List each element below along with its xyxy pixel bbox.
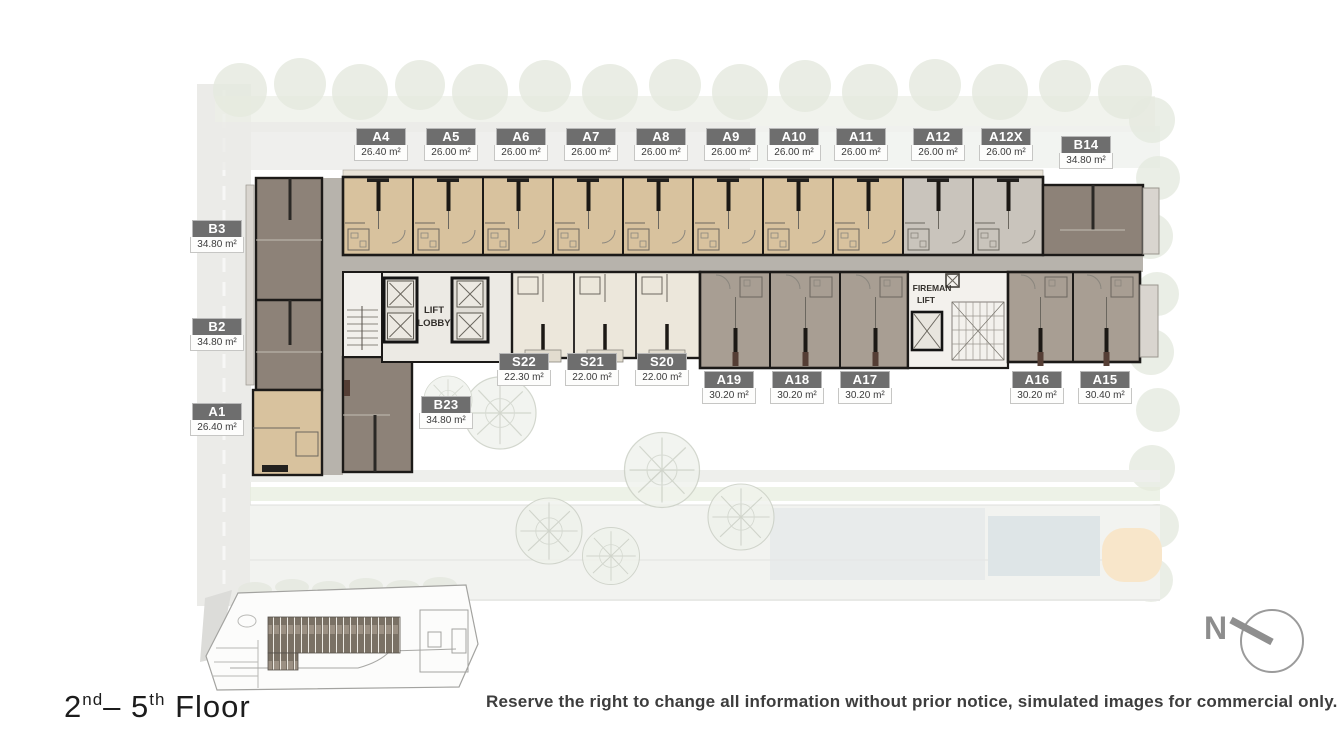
pool bbox=[988, 516, 1100, 576]
unit-area: 22.00 m² bbox=[635, 370, 689, 386]
north-label: N bbox=[1204, 610, 1227, 646]
unit-area: 34.80 m² bbox=[419, 413, 473, 429]
fireman-lift-core: FIREMAN LIFT bbox=[908, 272, 1008, 368]
fireman-lift-label-line1: FIREMAN bbox=[913, 283, 952, 293]
floor-separator: – bbox=[103, 689, 131, 724]
unit-name: S20 bbox=[638, 354, 686, 370]
floor-word: Floor bbox=[165, 689, 250, 724]
unit-label-b23: B23 34.80 m² bbox=[419, 397, 473, 429]
north-compass: N bbox=[1204, 610, 1303, 672]
unit-name: A1 bbox=[193, 404, 241, 420]
unit-label-a6: A6 26.00 m² bbox=[494, 129, 548, 161]
floor-title: 2nd– 5th Floor bbox=[64, 689, 251, 725]
unit-label-b2: B2 34.80 m² bbox=[190, 319, 244, 351]
unit-label-a10: A10 26.00 m² bbox=[767, 129, 821, 161]
unit-label-b3: B3 34.80 m² bbox=[190, 221, 244, 253]
unit-name: B14 bbox=[1062, 137, 1110, 153]
unit-area: 26.00 m² bbox=[767, 145, 821, 161]
unit-label-a9: A9 26.00 m² bbox=[704, 129, 758, 161]
unit-area: 26.00 m² bbox=[634, 145, 688, 161]
side-corridor bbox=[322, 178, 343, 475]
main-corridor bbox=[322, 255, 1143, 272]
unit-label-a16: A16 30.20 m² bbox=[1010, 372, 1064, 404]
unit-label-s22: S22 22.30 m² bbox=[497, 354, 551, 386]
left-balcony-strip bbox=[246, 185, 254, 385]
unit-area: 26.00 m² bbox=[979, 145, 1033, 161]
unit-name: A9 bbox=[707, 129, 755, 145]
unit-name: A16 bbox=[1013, 372, 1061, 388]
unit-label-a1: A1 26.40 m² bbox=[190, 404, 244, 436]
unit-label-a11: A11 26.00 m² bbox=[834, 129, 888, 161]
unit-area: 26.00 m² bbox=[911, 145, 965, 161]
unit-area: 22.00 m² bbox=[565, 370, 619, 386]
unit-label-a4: A4 26.40 m² bbox=[354, 129, 408, 161]
key-plan bbox=[200, 577, 478, 690]
unit-label-b14: B14 34.80 m² bbox=[1059, 137, 1113, 169]
deck-area bbox=[770, 508, 985, 580]
unit-label-a12: A12 26.00 m² bbox=[911, 129, 965, 161]
unit-name: B3 bbox=[193, 221, 241, 237]
right-balcony-strip bbox=[1140, 285, 1158, 357]
floorplan-page: LIFT LOBBY bbox=[0, 0, 1342, 754]
unit-label-a5: A5 26.00 m² bbox=[424, 129, 478, 161]
unit-name: A18 bbox=[773, 372, 821, 388]
unit-area: 30.20 m² bbox=[770, 388, 824, 404]
unit-label-a19: A19 30.20 m² bbox=[702, 372, 756, 404]
unit-area: 34.80 m² bbox=[190, 335, 244, 351]
unit-label-a12x: A12X 26.00 m² bbox=[979, 129, 1033, 161]
orange-deck bbox=[1102, 528, 1162, 582]
unit-area: 26.00 m² bbox=[704, 145, 758, 161]
unit-area: 30.20 m² bbox=[1010, 388, 1064, 404]
unit-area: 30.20 m² bbox=[838, 388, 892, 404]
unit-area: 34.80 m² bbox=[1059, 153, 1113, 169]
unit-label-s20: S20 22.00 m² bbox=[635, 354, 689, 386]
unit-name: A11 bbox=[837, 129, 885, 145]
unit-name: B23 bbox=[422, 397, 470, 413]
unit-label-a15: A15 30.40 m² bbox=[1078, 372, 1132, 404]
unit-area: 34.80 m² bbox=[190, 237, 244, 253]
unit-name: A12X bbox=[982, 129, 1030, 145]
unit-area: 26.00 m² bbox=[834, 145, 888, 161]
disclaimer-text: Reserve the right to change all informat… bbox=[486, 692, 1338, 712]
unit-name: A6 bbox=[497, 129, 545, 145]
unit-area: 30.40 m² bbox=[1078, 388, 1132, 404]
floor-num-end: 5 bbox=[131, 689, 149, 724]
floor-ordinal-start: nd bbox=[82, 690, 103, 709]
unit-name: A8 bbox=[637, 129, 685, 145]
unit-area: 22.30 m² bbox=[497, 370, 551, 386]
unit-name: B2 bbox=[193, 319, 241, 335]
unit-label-a7: A7 26.00 m² bbox=[564, 129, 618, 161]
lift-lobby: LIFT LOBBY bbox=[382, 272, 512, 362]
floor-num-start: 2 bbox=[64, 689, 82, 724]
unit-area: 26.00 m² bbox=[494, 145, 548, 161]
unit-area: 26.40 m² bbox=[354, 145, 408, 161]
lift-lobby-label-line2: LOBBY bbox=[417, 318, 451, 329]
unit-name: A4 bbox=[357, 129, 405, 145]
key-plan-building-footprint bbox=[268, 617, 400, 653]
unit-name: S21 bbox=[568, 354, 616, 370]
unit-name: A12 bbox=[914, 129, 962, 145]
unit-name: A10 bbox=[770, 129, 818, 145]
unit-area: 26.00 m² bbox=[564, 145, 618, 161]
unit-name: A19 bbox=[705, 372, 753, 388]
unit-name: A15 bbox=[1081, 372, 1129, 388]
unit-name: A5 bbox=[427, 129, 475, 145]
unit-area: 26.00 m² bbox=[424, 145, 478, 161]
fireman-lift-label-line2: LIFT bbox=[917, 295, 936, 305]
unit-area: 30.20 m² bbox=[702, 388, 756, 404]
unit-name: A7 bbox=[567, 129, 615, 145]
b14-balcony bbox=[1143, 188, 1159, 254]
unit-label-a18: A18 30.20 m² bbox=[770, 372, 824, 404]
unit-name: S22 bbox=[500, 354, 548, 370]
lift-lobby-label-line1: LIFT bbox=[424, 305, 444, 316]
left-staircase bbox=[343, 272, 382, 357]
unit-label-s21: S21 22.00 m² bbox=[565, 354, 619, 386]
unit-area: 26.40 m² bbox=[190, 420, 244, 436]
floor-ordinal-end: th bbox=[149, 690, 165, 709]
unit-label-a17: A17 30.20 m² bbox=[838, 372, 892, 404]
unit-name: A17 bbox=[841, 372, 889, 388]
building-plan: LIFT LOBBY bbox=[246, 170, 1159, 475]
unit-label-a8: A8 26.00 m² bbox=[634, 129, 688, 161]
